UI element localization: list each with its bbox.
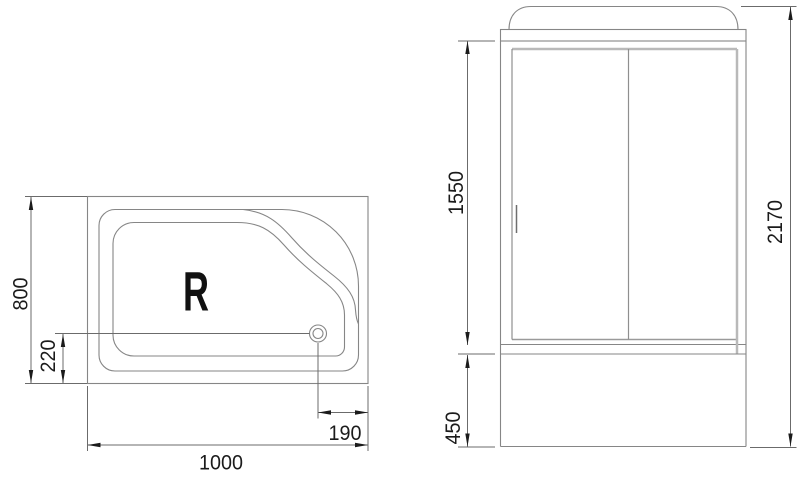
arrow-down-icon (29, 370, 33, 383)
arrow-up-icon (29, 197, 33, 210)
arrow-right-icon (355, 410, 368, 414)
dim-door-height-1550: 1550 (445, 41, 495, 345)
cabin-roof-dome (509, 7, 738, 30)
drawing-canvas: R 800 220 1000 (0, 0, 800, 477)
dim-drain-bottom-220: 220 (37, 334, 310, 384)
dimensions-tray: 800 220 1000 190 (10, 197, 369, 475)
arrow-up-icon (465, 355, 469, 368)
dim-drain-right-190: 190 (318, 343, 368, 445)
cabin-top-bar (501, 30, 747, 42)
drain-icon-outer (310, 325, 327, 342)
tray-orientation-label: R (183, 260, 209, 323)
technical-drawing: R 800 220 1000 (0, 0, 800, 477)
cabin-front-view (501, 7, 747, 447)
arrow-left-icon (88, 443, 101, 447)
dim-label-1000: 1000 (199, 452, 243, 475)
dim-label-220: 220 (37, 340, 60, 373)
dim-label-190: 190 (329, 422, 362, 445)
dim-label-1550: 1550 (445, 171, 468, 215)
arrow-up-icon (61, 334, 65, 347)
dim-label-800: 800 (10, 278, 33, 311)
tray-top-view (88, 197, 369, 384)
dim-base-height-450: 450 (442, 354, 495, 447)
dim-label-450: 450 (442, 412, 465, 445)
arrow-down-icon (61, 370, 65, 383)
arrow-left-icon (318, 410, 331, 414)
drain-icon-inner (313, 329, 323, 339)
dim-label-2170: 2170 (764, 200, 787, 244)
arrow-up-icon (465, 41, 469, 54)
dimensions-cabin: 1550 450 2170 (442, 7, 797, 448)
dim-total-height-2170: 2170 (741, 7, 797, 448)
arrow-down-icon (465, 434, 469, 447)
dim-width-1000: 1000 (88, 386, 369, 475)
arrow-down-icon (788, 434, 792, 447)
arrow-up-icon (788, 7, 792, 20)
arrow-down-icon (465, 332, 469, 345)
tray-inner-rim (99, 210, 359, 372)
